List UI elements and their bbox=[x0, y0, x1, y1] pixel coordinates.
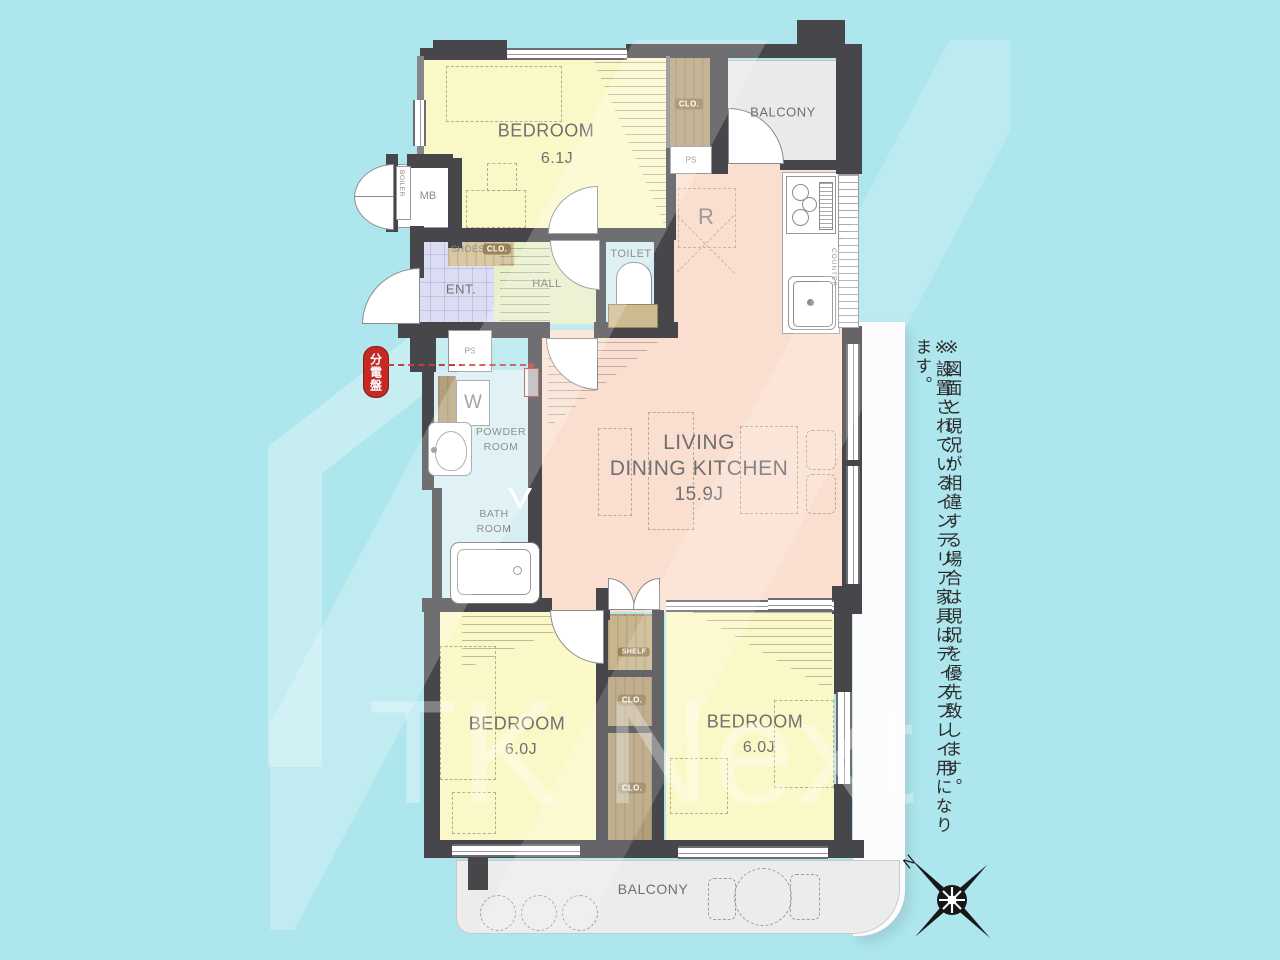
wall bbox=[836, 56, 862, 174]
bedroom-right-size: 6.0J bbox=[743, 739, 775, 757]
balcony-table bbox=[734, 868, 792, 926]
bath-line2: ROOM bbox=[477, 523, 512, 535]
balcony-chair bbox=[790, 874, 820, 920]
entrance-label: ENT. bbox=[446, 282, 476, 297]
planter bbox=[562, 895, 598, 931]
ldk-size: 15.9J bbox=[675, 484, 724, 506]
ldk-line1: LIVING bbox=[663, 431, 735, 455]
furniture-outline bbox=[466, 190, 526, 228]
wall bbox=[407, 154, 453, 168]
furniture-outline bbox=[487, 163, 517, 191]
wall bbox=[710, 56, 728, 174]
compass-icon: N bbox=[898, 842, 1002, 946]
washer-label: W bbox=[464, 392, 482, 414]
wall bbox=[424, 608, 440, 852]
closet-mid-label: CLO. bbox=[618, 695, 646, 706]
bedroom-top-name: BEDROOM bbox=[498, 121, 595, 142]
pipe-space-mid-label: PS bbox=[465, 347, 476, 356]
furniture-outline bbox=[452, 792, 496, 834]
room-shelf bbox=[608, 616, 654, 670]
wall bbox=[606, 670, 656, 677]
wall bbox=[420, 48, 512, 60]
toilet-tank bbox=[608, 304, 658, 328]
window bbox=[836, 692, 852, 784]
wall bbox=[797, 20, 845, 46]
balcony-bottom-label: BALCONY bbox=[618, 881, 688, 897]
distribution-board-unit bbox=[524, 368, 539, 397]
window bbox=[452, 844, 580, 857]
furniture-outline bbox=[806, 430, 836, 470]
wall bbox=[780, 160, 838, 170]
note-line2: ※設置されているインテリア家具はディスプレイ用になります。 bbox=[911, 338, 952, 838]
shoes-closet-word1: SHOES bbox=[451, 244, 485, 254]
refrigerator-label: R bbox=[698, 204, 714, 230]
room-balcony-bottom bbox=[456, 860, 900, 934]
compass-north-label: N bbox=[899, 852, 919, 871]
window bbox=[846, 466, 860, 584]
planter bbox=[480, 895, 516, 931]
furniture-outline bbox=[806, 474, 836, 514]
toilet-bowl bbox=[616, 262, 652, 310]
stove bbox=[786, 176, 836, 234]
distribution-board-dot bbox=[528, 363, 534, 369]
ldk-line2: DINING KITCHEN bbox=[610, 457, 789, 481]
powder-line2: ROOM bbox=[484, 441, 519, 453]
balcony-top-label: BALCONY bbox=[750, 105, 816, 120]
distribution-board-line bbox=[388, 364, 526, 366]
distribution-board-badge: 分電盤 bbox=[363, 346, 389, 398]
hall-label: HALL bbox=[532, 278, 562, 290]
bedroom-left-size: 6.0J bbox=[505, 741, 537, 759]
planter bbox=[521, 895, 557, 931]
kitchen-sink bbox=[788, 276, 836, 330]
powder-sink bbox=[428, 422, 472, 476]
window bbox=[768, 598, 832, 611]
window bbox=[413, 100, 426, 146]
floorplan-canvas: BOILER MB PS PS W R COUNTER 分電盤 bbox=[0, 0, 1280, 960]
wall bbox=[834, 784, 852, 858]
closet-top-label: CLO. bbox=[675, 99, 703, 110]
counter-label: COUNTER bbox=[830, 248, 837, 287]
window bbox=[838, 174, 859, 328]
shoes-closet-word2: CLO. bbox=[483, 244, 511, 255]
bath-line1: BATH bbox=[479, 508, 508, 520]
bedroom-left-name: BEDROOM bbox=[469, 714, 566, 735]
balcony-chair bbox=[708, 878, 736, 920]
meter-box-label: MB bbox=[420, 190, 437, 202]
window bbox=[507, 48, 627, 60]
wall bbox=[626, 44, 862, 58]
boiler-label: BOILER bbox=[398, 170, 405, 197]
door-meter-box-top bbox=[354, 164, 394, 198]
bathtub bbox=[450, 542, 540, 604]
wall bbox=[606, 726, 656, 733]
wall bbox=[468, 856, 488, 890]
bedroom-right-name: BEDROOM bbox=[707, 712, 804, 733]
wall bbox=[834, 608, 852, 694]
closet-bottom-label: CLO. bbox=[618, 783, 646, 794]
shelf-label: SHELF bbox=[618, 648, 650, 657]
furniture-outline bbox=[670, 758, 728, 814]
wall bbox=[432, 488, 442, 612]
window bbox=[678, 846, 828, 859]
bedroom-top-size: 6.1J bbox=[541, 150, 573, 168]
powder-line1: POWDER bbox=[476, 426, 526, 438]
window bbox=[846, 344, 860, 460]
washer-side-panel bbox=[438, 376, 456, 424]
wall bbox=[666, 56, 670, 150]
furniture-outline bbox=[446, 66, 562, 122]
toilet-label: TOILET bbox=[610, 248, 651, 260]
pipe-space-top-label: PS bbox=[686, 156, 697, 165]
